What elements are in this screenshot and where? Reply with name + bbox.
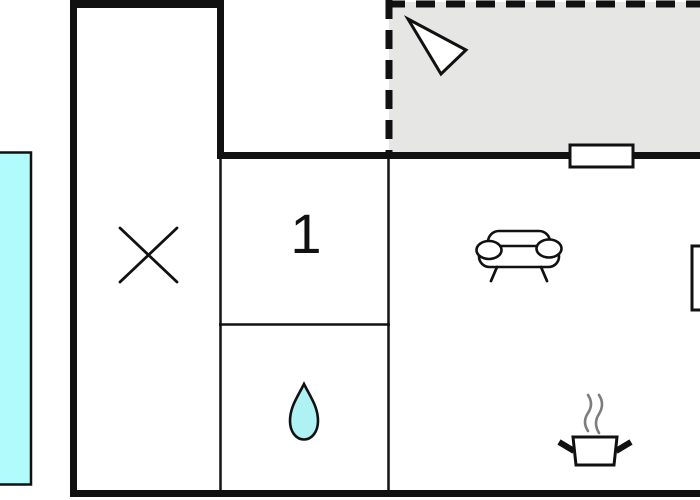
floorplan: 1 <box>0 0 700 500</box>
room-1-label: 1 <box>290 202 321 265</box>
sofa-icon <box>477 231 562 281</box>
pool-area <box>0 153 31 485</box>
terrace-area <box>389 2 700 155</box>
wall-wing-top <box>70 0 224 8</box>
wall-bottom <box>70 490 700 497</box>
window-symbol <box>570 145 633 167</box>
wall-wing-right-upper <box>217 0 224 157</box>
steam-line <box>585 395 591 431</box>
cooking-pot-icon <box>559 395 631 465</box>
partial-furniture-rect <box>692 246 700 310</box>
steam-line <box>596 395 602 433</box>
cross-icon <box>120 228 177 282</box>
wall-wing-left <box>70 0 77 497</box>
water-drop-icon <box>290 384 318 440</box>
floorplan-canvas: 1 <box>0 0 700 500</box>
